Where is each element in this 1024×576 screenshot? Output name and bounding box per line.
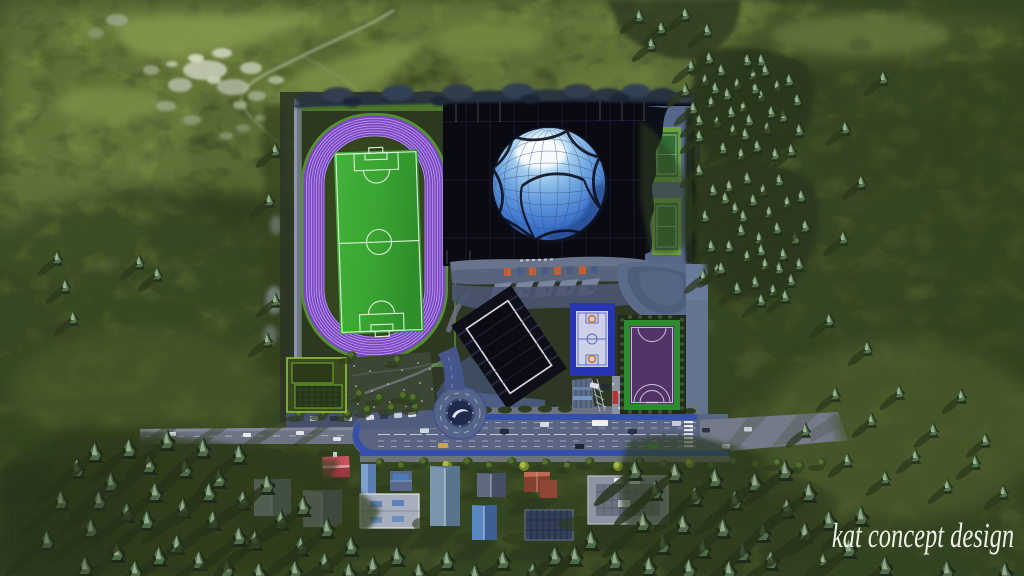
svg-text:kat concept design: kat concept design — [832, 516, 1014, 555]
